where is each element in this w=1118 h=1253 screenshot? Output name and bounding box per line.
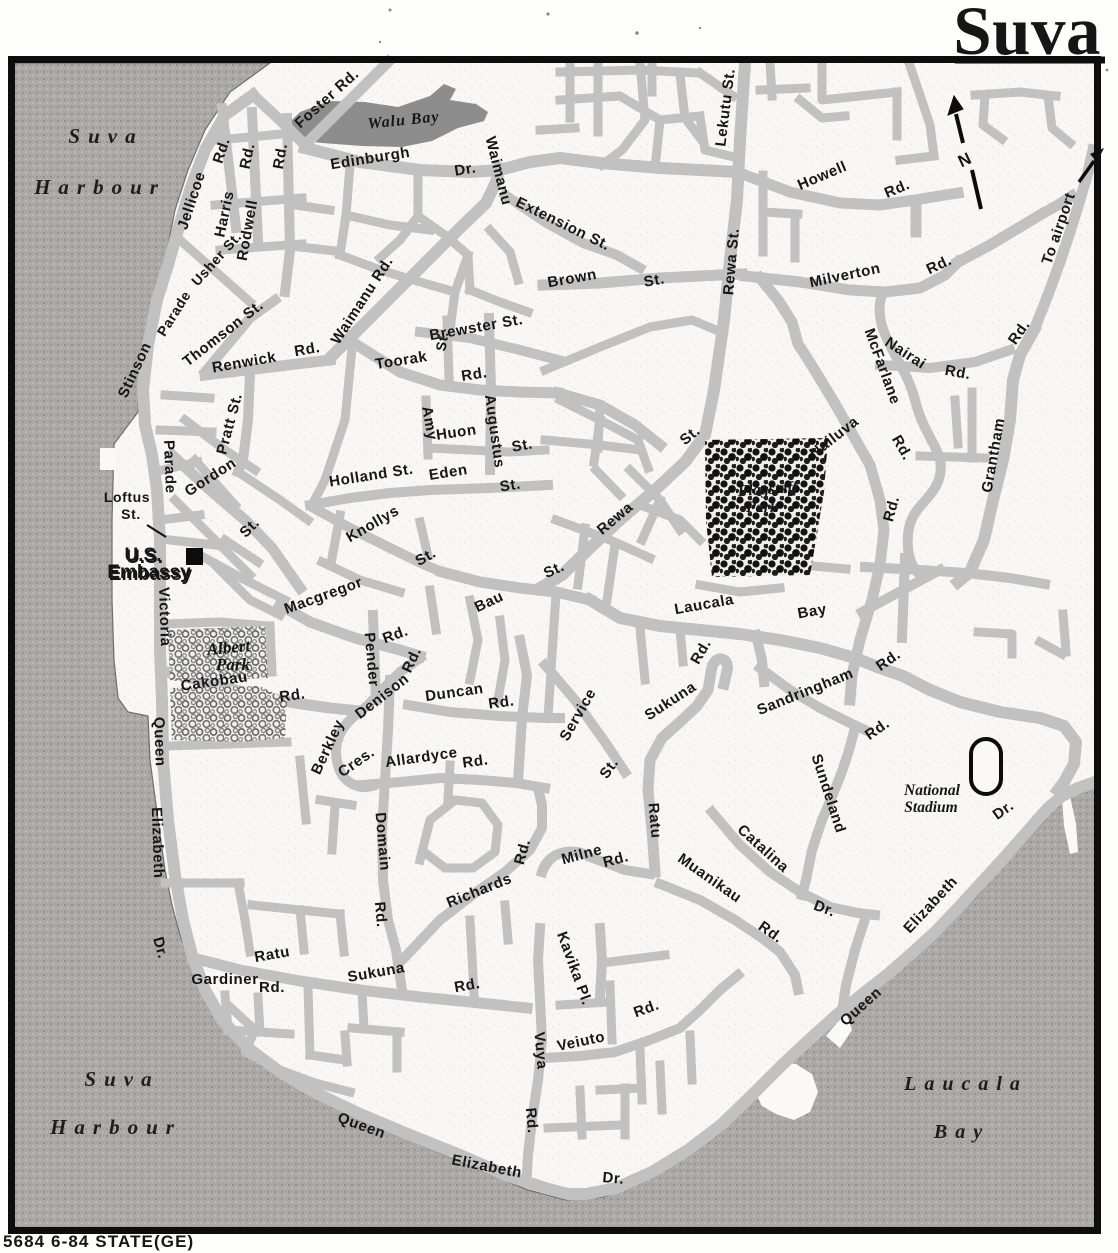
svg-text:Rd.: Rd. [278, 685, 306, 705]
svg-text:Victoria: Victoria [155, 587, 174, 647]
svg-text:St.: St. [499, 476, 522, 496]
svg-text:Suva: Suva [953, 0, 1101, 69]
svg-text:St.: St. [121, 506, 141, 522]
svg-text:Harbour: Harbour [33, 175, 166, 199]
svg-text:National: National [903, 782, 961, 799]
svg-text:Parade: Parade [160, 440, 179, 494]
svg-text:Park: Park [215, 655, 251, 674]
svg-text:Suva: Suva [68, 124, 143, 148]
svg-text:Gardiner: Gardiner [191, 971, 258, 988]
svg-text:Loftus: Loftus [104, 489, 150, 505]
svg-text:Ratu: Ratu [644, 802, 664, 839]
svg-text:St.: St. [642, 270, 666, 290]
svg-text:Suva: Suva [84, 1067, 159, 1091]
svg-text:Rd.: Rd. [259, 979, 285, 996]
svg-text:Rd.: Rd. [371, 901, 390, 928]
svg-text:Laucala: Laucala [903, 1073, 1028, 1095]
svg-text:Park: Park [745, 499, 778, 516]
svg-text:Vuya: Vuya [530, 1031, 550, 1070]
svg-text:St.: St. [510, 435, 534, 455]
svg-text:5684 6-84 STATE(GE): 5684 6-84 STATE(GE) [3, 1232, 194, 1251]
svg-text:Harbour: Harbour [49, 1115, 182, 1139]
svg-text:Stadium: Stadium [904, 799, 957, 816]
svg-text:Dr.: Dr. [453, 159, 477, 179]
svg-text:Elizabeth: Elizabeth [148, 807, 167, 879]
svg-text:Rd.: Rd. [461, 751, 489, 771]
svg-text:Rd.: Rd. [522, 1107, 541, 1134]
svg-text:Rd.: Rd. [487, 692, 515, 712]
svg-text:St.: St. [432, 330, 451, 352]
svg-text:Dr.: Dr. [602, 1169, 625, 1188]
svg-text:Bay: Bay [933, 1121, 990, 1143]
svg-text:Queen: Queen [150, 717, 169, 767]
svg-text:Embassy: Embassy [109, 564, 193, 585]
